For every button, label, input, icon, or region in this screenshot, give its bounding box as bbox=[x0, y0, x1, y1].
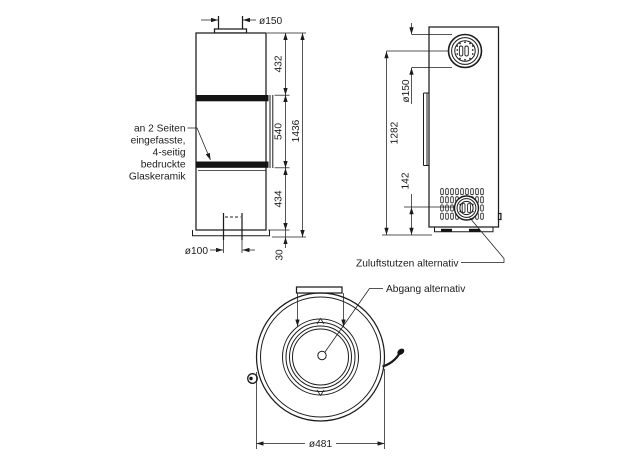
glass-frame-bottom bbox=[196, 162, 269, 168]
note-line-1: an 2 Seiten bbox=[134, 124, 186, 135]
damper-tab bbox=[499, 214, 501, 220]
side-view: ø150 1282 142 Zuluftstutzen alternativ bbox=[356, 23, 504, 270]
dim-total-height: 1436 bbox=[291, 33, 303, 237]
dim-label-upper: 432 bbox=[274, 55, 285, 72]
dim-label-air-inlet: ø100 bbox=[185, 246, 209, 257]
rear-spacer-tab bbox=[297, 287, 343, 293]
note-line-3: 4-seitig bbox=[153, 148, 186, 159]
door-handle bbox=[383, 347, 406, 366]
base-plinth-front bbox=[193, 230, 270, 236]
dim-flue-top: ø150 bbox=[201, 16, 283, 27]
dim-label-base: 30 bbox=[275, 249, 286, 261]
note-line-2: eingefasste, bbox=[131, 136, 186, 147]
note-line-5: Glaskeramik bbox=[129, 172, 187, 183]
flue-outlet-label: Abgang alternativ bbox=[386, 284, 466, 295]
side-glass-pane bbox=[424, 93, 430, 166]
drawing-canvas: ø150 432 540 434 30 1436 bbox=[0, 0, 624, 460]
stove-body-front bbox=[196, 33, 266, 230]
stove-technical-drawing: ø150 432 540 434 30 1436 bbox=[0, 0, 624, 460]
flue-outlet-annotation: Abgang alternativ bbox=[325, 284, 466, 352]
flue-outlet-center bbox=[318, 351, 326, 359]
dim-label-glass: 540 bbox=[274, 123, 285, 140]
dim-label-flue-height: 1282 bbox=[390, 121, 401, 144]
glass-frame-top bbox=[196, 95, 269, 101]
dim-outer-diameter: ø481 bbox=[257, 369, 385, 450]
dim-label-flue-top: ø150 bbox=[259, 16, 283, 27]
air-port-label: Zuluftstutzen alternativ bbox=[356, 259, 459, 270]
flue-stub-top bbox=[215, 16, 247, 33]
dim-label-flue-side: ø150 bbox=[401, 79, 412, 103]
dim-chain-front: 432 540 434 30 bbox=[274, 33, 286, 261]
top-view: Abgang alternativ ø481 bbox=[248, 284, 466, 450]
flue-port-side bbox=[449, 35, 482, 68]
air-port-side bbox=[455, 196, 479, 220]
note-line-4: bedruckte bbox=[141, 160, 186, 171]
dim-label-total: 1436 bbox=[291, 119, 302, 142]
front-view: ø150 432 540 434 30 1436 bbox=[129, 16, 306, 261]
dim-label-outer-diameter: ø481 bbox=[309, 439, 333, 450]
dim-label-air-port-height: 142 bbox=[401, 172, 412, 189]
side-knob bbox=[248, 374, 258, 384]
dim-label-lower: 434 bbox=[274, 190, 285, 207]
dim-air-inlet: ø100 bbox=[185, 240, 255, 257]
